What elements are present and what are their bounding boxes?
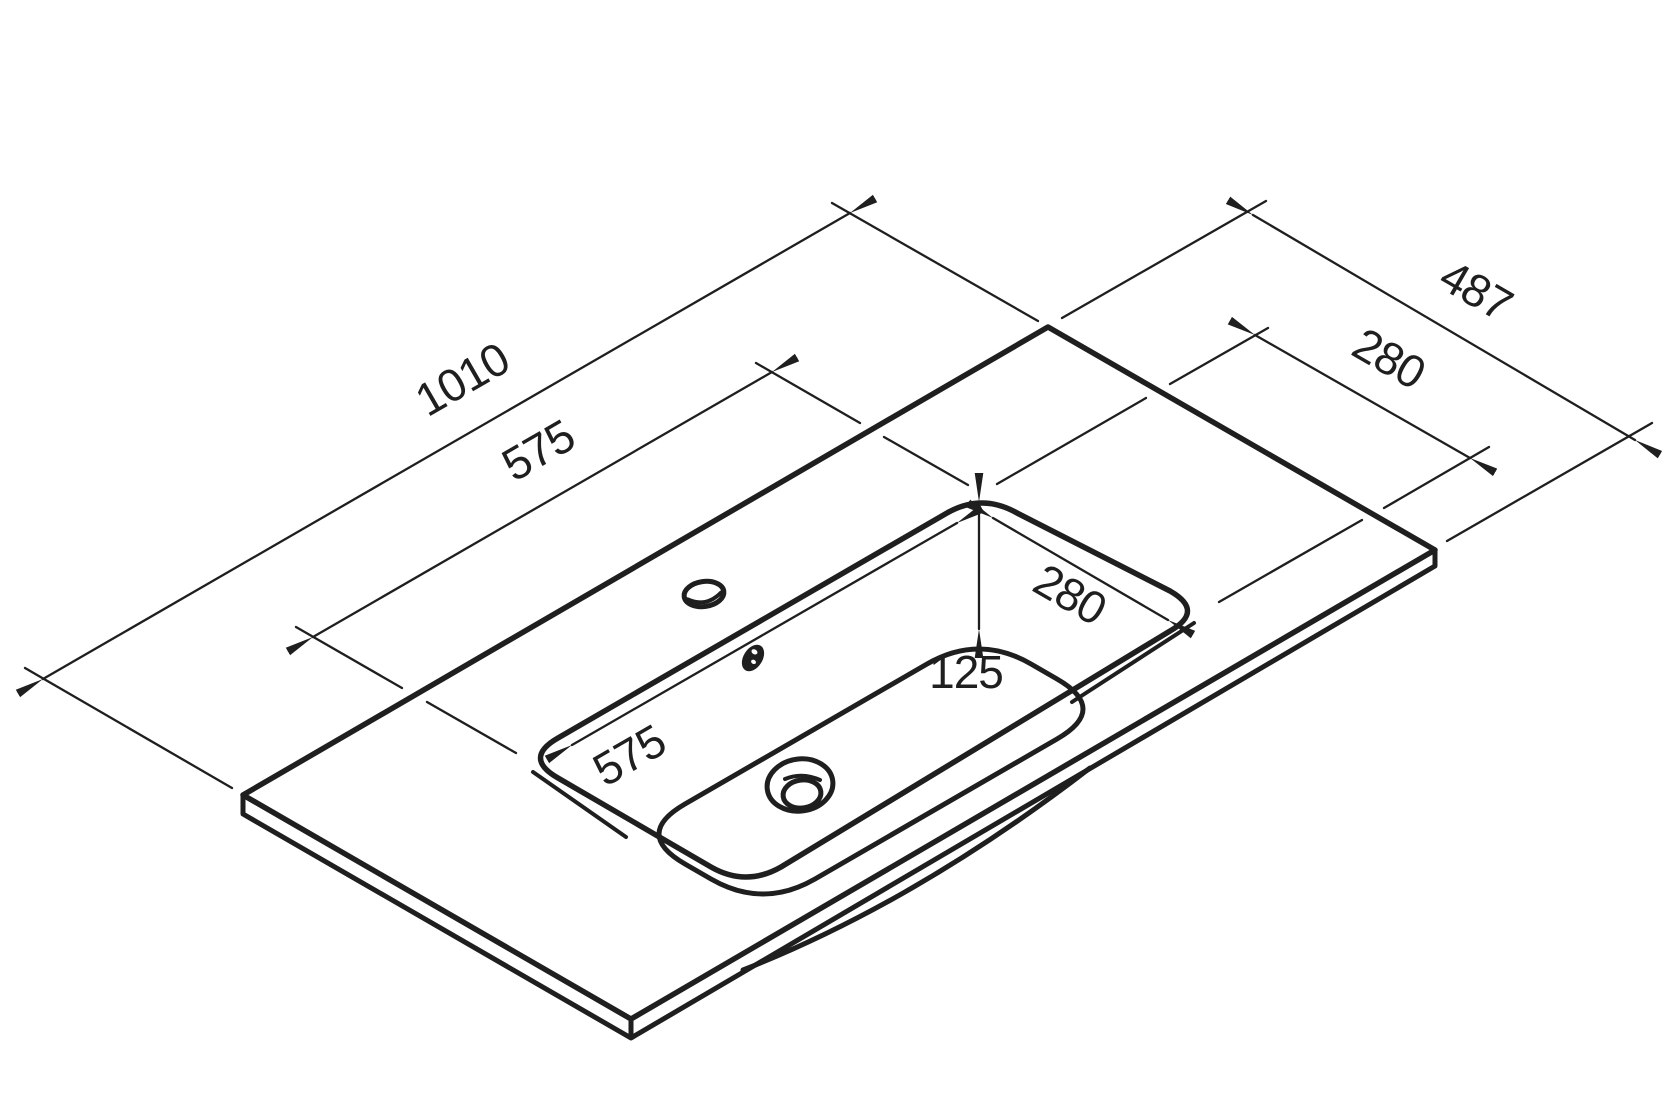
dim-overall-length-label: 1010 [406,332,517,426]
countertop-slab [243,327,1435,1038]
dim-overall-depth-line [1253,215,1635,440]
dim-overall-depth: 487 [1253,215,1635,440]
dim-deck-cutout-depth: 280 [1255,317,1470,458]
dim-overall-length: 1010 [43,213,850,679]
basin-floor [659,649,1083,894]
dim-deck-cutout-depth-label: 280 [1344,317,1434,399]
dim-deck-cutout-length-label: 575 [493,409,583,491]
dim-bowl-opening-length-label: 575 [584,714,674,796]
technical-drawing: 1010 575 487 280 575 280 125 [0,0,1680,1120]
dim-bowl-inner-depth-label: 125 [929,646,1003,698]
holes [682,579,836,816]
slab-side-edges [243,550,1435,1038]
dim-overall-length-line [43,213,850,679]
dim-bowl-opening-depth-label: 280 [1025,553,1115,635]
dim-deck-cutout-length-line [313,372,772,637]
dim-overall-depth-label: 487 [1431,249,1521,331]
dim-deck-cutout-length: 575 [313,372,772,637]
drain-hole [764,755,837,816]
bowl-wall-seam-east [1072,623,1194,702]
faucet-hole [682,579,725,609]
extension-lines [25,201,1652,788]
basin-bowl [533,503,1194,894]
dim-bowl-opening-length-line [572,523,957,745]
isometric-sink-diagram: 1010 575 487 280 575 280 125 [0,0,1680,1120]
